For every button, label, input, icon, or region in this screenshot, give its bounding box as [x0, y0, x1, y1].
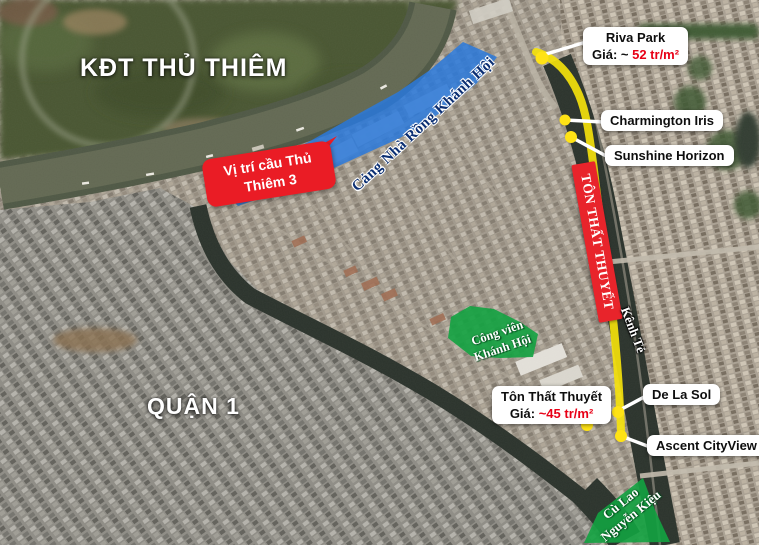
- label-charmington-iris: Charmington Iris: [601, 110, 723, 131]
- marker-riva-park: [536, 52, 549, 65]
- marker-sunshine-horizon: [565, 131, 577, 143]
- label-ascent-cityview: Ascent CityView: [647, 435, 759, 456]
- area-label-thu-thiem: KĐT THỦ THIÊM: [80, 54, 287, 83]
- project-price: Giá: ~45 tr/m²: [501, 405, 602, 422]
- project-name: Riva Park: [592, 29, 679, 46]
- marker-de-la-sol: [612, 406, 624, 418]
- label-de-la-sol: De La Sol: [643, 384, 720, 405]
- project-name: Tôn Thất Thuyết: [501, 388, 602, 405]
- label-sunshine-horizon: Sunshine Horizon: [605, 145, 734, 166]
- project-price: Giá: ~ 52 tr/m²: [592, 46, 679, 63]
- label-riva-park: Riva Park Giá: ~ 52 tr/m²: [583, 27, 688, 65]
- marker-charmington-iris: [560, 115, 571, 126]
- area-label-quan-1: QUẬN 1: [147, 393, 240, 420]
- label-ton-that-thuyet-price: Tôn Thất Thuyết Giá: ~45 tr/m²: [492, 386, 611, 424]
- aerial-map: KĐT THỦ THIÊM QUẬN 1 Vị trí cầu Thủ Thiê…: [0, 0, 759, 545]
- marker-ascent-cityview: [615, 430, 627, 442]
